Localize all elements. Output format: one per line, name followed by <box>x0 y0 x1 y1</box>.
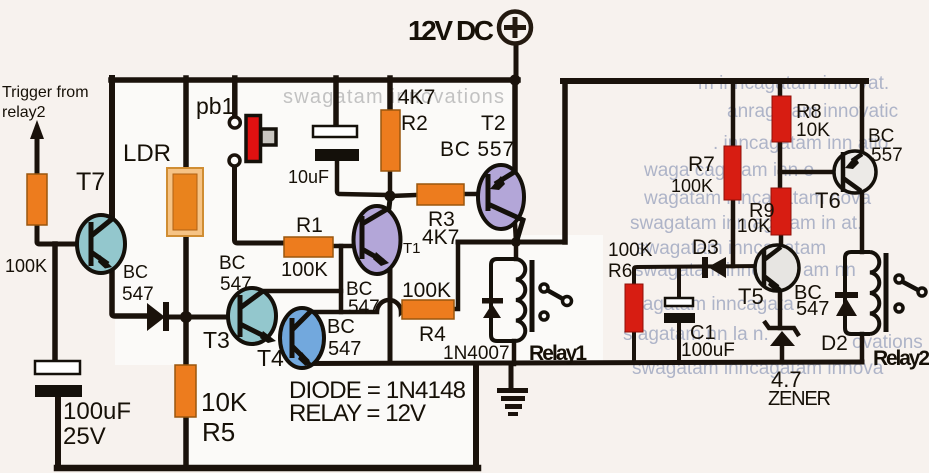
svg-text:BC: BC <box>123 262 148 282</box>
svg-text:547: 547 <box>796 298 829 320</box>
svg-text:T7: T7 <box>76 168 105 196</box>
svg-text:T2: T2 <box>481 112 506 135</box>
svg-text:ZENER: ZENER <box>768 388 831 410</box>
svg-text:T6: T6 <box>815 188 841 213</box>
svg-text:BC: BC <box>868 126 894 147</box>
svg-text:10K: 10K <box>737 216 771 237</box>
svg-text:547: 547 <box>348 297 380 318</box>
svg-text:R6: R6 <box>608 261 632 282</box>
svg-text:10K: 10K <box>796 120 830 141</box>
svg-text:D2: D2 <box>821 332 848 355</box>
svg-text:1N4007: 1N4007 <box>443 343 510 364</box>
svg-text:Relay1: Relay1 <box>529 342 587 365</box>
svg-text:R2: R2 <box>401 112 428 135</box>
svg-text:T1: T1 <box>403 240 421 257</box>
svg-text:100uF: 100uF <box>63 398 131 425</box>
svg-text:10K: 10K <box>201 387 248 417</box>
svg-text:100K: 100K <box>402 279 451 302</box>
svg-text:relay2: relay2 <box>2 104 46 121</box>
svg-text:T4: T4 <box>257 345 284 371</box>
svg-text:RELAY = 12V: RELAY = 12V <box>289 400 426 427</box>
svg-text:4K7: 4K7 <box>422 226 459 249</box>
svg-text:BC: BC <box>327 316 355 338</box>
svg-text:100K: 100K <box>671 176 713 196</box>
svg-text:4K7: 4K7 <box>398 86 435 109</box>
svg-text:10uF: 10uF <box>288 167 329 187</box>
svg-text:T3: T3 <box>203 327 230 353</box>
svg-text:swagatam inncagat am nn: swagatam inncagat am nn <box>634 260 856 281</box>
svg-text:pb1: pb1 <box>196 93 234 119</box>
svg-text:R1: R1 <box>296 214 323 237</box>
svg-text:R7: R7 <box>688 153 715 176</box>
svg-text:LDR: LDR <box>123 140 171 167</box>
svg-text:Relay2: Relay2 <box>873 347 929 370</box>
svg-text:wagatam inncagata: wagatam inncagata <box>628 294 794 315</box>
svg-text:Trigger from: Trigger from <box>2 84 89 101</box>
svg-text:T5: T5 <box>738 284 764 309</box>
svg-text:547: 547 <box>220 274 252 295</box>
svg-text:100K: 100K <box>608 240 653 261</box>
svg-text:547: 547 <box>328 338 361 360</box>
svg-text:D3: D3 <box>692 236 719 259</box>
svg-text:557: 557 <box>871 145 903 166</box>
svg-text:12V DC: 12V DC <box>408 15 494 46</box>
svg-text:100K: 100K <box>5 256 47 276</box>
svg-text:BC 557: BC 557 <box>440 138 514 161</box>
svg-text:100K: 100K <box>281 259 328 281</box>
svg-text:BC: BC <box>219 253 245 274</box>
svg-text:100uF: 100uF <box>681 340 735 361</box>
svg-text:25V: 25V <box>63 423 106 450</box>
svg-text:swagatam innovations: swagatam innovations <box>283 86 504 108</box>
svg-text:R5: R5 <box>202 417 235 447</box>
svg-text:547: 547 <box>122 284 154 305</box>
